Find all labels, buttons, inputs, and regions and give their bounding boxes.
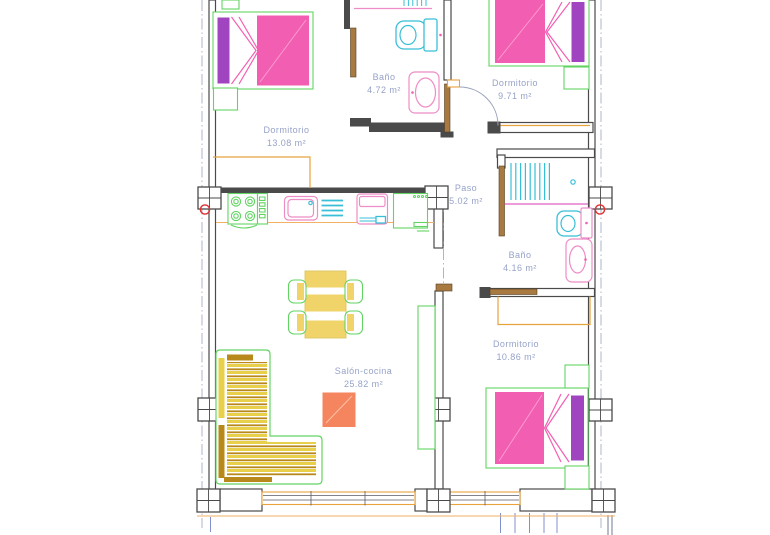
chair [345, 280, 363, 303]
sofa-armrest [219, 358, 225, 418]
room-label-bano-bottom: Baño 4.16 m² [503, 250, 537, 273]
flush-button [439, 34, 442, 37]
room-label-bano-top: Baño 4.72 m² [367, 72, 401, 95]
nightstand [565, 466, 589, 489]
refrigerator [357, 194, 388, 224]
sofa-cushions [267, 442, 316, 476]
nightstand [214, 88, 238, 110]
floor-plan-page: Dormitorio 13.08 m² Baño 4.72 m² Dormito… [0, 0, 770, 535]
room-label-salon-cocina: Salón-cocina 25.82 m² [335, 366, 392, 389]
toilet [396, 19, 442, 51]
svg-text:13.08 m²: 13.08 m² [267, 138, 306, 148]
bed-pillow [572, 2, 585, 62]
door-salon-paso [436, 284, 452, 291]
wardrobe-dormitorio-13 [213, 157, 310, 188]
nightstand [222, 0, 239, 9]
bed-pillow [571, 396, 584, 461]
washbasin [409, 72, 439, 113]
room-label-dormitorio-10: Dormitorio 10.86 m² [493, 339, 539, 362]
column [427, 489, 450, 512]
room-label-dormitorio-9: Dormitorio 9.71 m² [492, 78, 538, 101]
dining-table [305, 271, 346, 338]
svg-text:Paso: Paso [455, 183, 477, 193]
room-label-paso: Paso 5.02 m² [449, 183, 483, 206]
bed-dormitorio-10 [486, 365, 589, 489]
door-dormitorio-9 [448, 80, 499, 126]
room-label-dormitorio-13: Dormitorio 13.08 m² [263, 125, 309, 148]
dish-rack [322, 201, 344, 216]
svg-text:9.71 m²: 9.71 m² [498, 91, 532, 101]
sofa-armrest [219, 425, 225, 478]
svg-text:Dormitorio: Dormitorio [492, 78, 538, 88]
bed-dormitorio-9 [489, 0, 589, 89]
column [589, 187, 612, 209]
svg-text:Salón-cocina: Salón-cocina [335, 366, 392, 376]
bed-pillow [218, 18, 230, 84]
bathroom-top [354, 0, 442, 113]
door-paso-bathroom-top [445, 84, 451, 132]
kitchen [216, 194, 434, 232]
sofa [216, 350, 322, 484]
window-bottom-right [450, 491, 520, 506]
door-dormitorio-10 [490, 289, 537, 295]
dishwasher [394, 194, 430, 232]
door-bathroom-4-16 [499, 166, 505, 236]
flush-button [585, 222, 588, 225]
kitchen-sink [285, 197, 318, 221]
column [425, 186, 448, 209]
tv-cabinet [418, 306, 435, 449]
svg-text:25.82 m²: 25.82 m² [344, 379, 383, 389]
svg-text:4.16 m²: 4.16 m² [503, 263, 537, 273]
chair [289, 311, 307, 334]
svg-text:5.02 m²: 5.02 m² [449, 196, 483, 206]
door-swing-arc [460, 87, 499, 126]
drain [571, 180, 575, 184]
column [592, 489, 615, 512]
tap [411, 91, 414, 94]
stove [228, 194, 268, 229]
tap [584, 258, 587, 261]
floor-plan-canvas: Dormitorio 13.08 m² Baño 4.72 m² Dormito… [0, 0, 770, 535]
svg-text:Dormitorio: Dormitorio [263, 125, 309, 135]
door-dormitorio-13-bathroom [351, 28, 357, 77]
svg-text:Baño: Baño [509, 250, 532, 260]
nightstand [565, 365, 589, 388]
nightstand [564, 67, 589, 89]
column [197, 489, 220, 512]
shower [505, 163, 589, 204]
window-bottom-left [262, 491, 415, 506]
svg-text:10.86 m²: 10.86 m² [496, 352, 535, 362]
bed-dormitorio-13 [213, 0, 313, 110]
svg-text:Dormitorio: Dormitorio [493, 339, 539, 349]
svg-text:Baño: Baño [373, 72, 396, 82]
washbasin [566, 239, 592, 282]
chair [289, 280, 307, 303]
bed-mattress [495, 0, 545, 63]
svg-text:4.72 m²: 4.72 m² [367, 85, 401, 95]
sofa-cushions [227, 362, 267, 476]
wardrobe-dormitorio-10 [498, 297, 590, 325]
column [589, 399, 612, 421]
toilet [557, 208, 592, 238]
towel-rail [404, 0, 426, 6]
chair [345, 311, 363, 334]
